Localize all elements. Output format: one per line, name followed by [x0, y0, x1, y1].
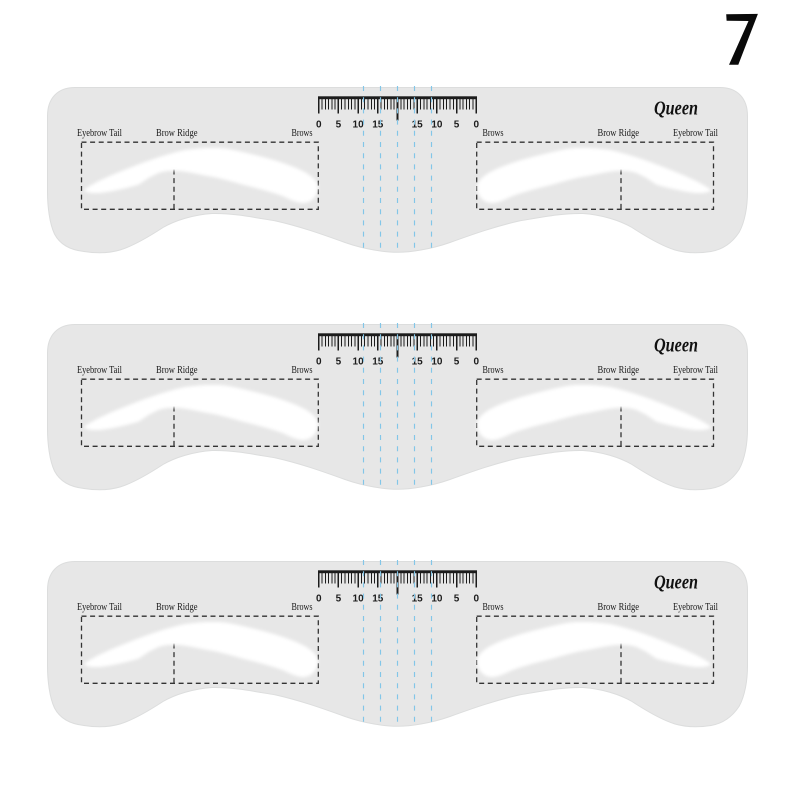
- svg-text:0: 0: [473, 120, 479, 131]
- svg-text:Brow Ridge: Brow Ridge: [156, 602, 198, 613]
- svg-text:Brows: Brows: [483, 365, 504, 376]
- svg-text:15: 15: [412, 357, 424, 368]
- svg-text:Eyebrow Tail: Eyebrow Tail: [77, 602, 122, 613]
- svg-text:10: 10: [431, 120, 443, 131]
- svg-text:15: 15: [372, 357, 384, 368]
- svg-text:Eyebrow Tail: Eyebrow Tail: [673, 365, 718, 376]
- svg-text:10: 10: [353, 357, 365, 368]
- svg-text:Brows: Brows: [483, 602, 504, 613]
- svg-text:0: 0: [316, 357, 322, 368]
- svg-text:Brow Ridge: Brow Ridge: [598, 365, 640, 376]
- svg-text:15: 15: [372, 120, 384, 131]
- svg-text:Eyebrow Tail: Eyebrow Tail: [673, 128, 718, 139]
- svg-text:15: 15: [372, 594, 384, 605]
- svg-text:Brow Ridge: Brow Ridge: [156, 365, 198, 376]
- svg-text:5: 5: [336, 120, 342, 131]
- svg-text:0: 0: [473, 357, 479, 368]
- svg-text:5: 5: [336, 357, 342, 368]
- svg-text:5: 5: [454, 357, 460, 368]
- svg-text:Brow Ridge: Brow Ridge: [598, 602, 640, 613]
- svg-text:15: 15: [412, 594, 424, 605]
- svg-text:Queen: Queen: [654, 572, 698, 594]
- svg-text:Brows: Brows: [292, 365, 313, 376]
- svg-text:10: 10: [431, 594, 443, 605]
- svg-text:10: 10: [353, 120, 365, 131]
- svg-text:5: 5: [454, 120, 460, 131]
- svg-text:0: 0: [473, 594, 479, 605]
- svg-text:Eyebrow Tail: Eyebrow Tail: [673, 602, 718, 613]
- svg-text:5: 5: [336, 594, 342, 605]
- svg-text:10: 10: [431, 357, 443, 368]
- svg-text:Brow Ridge: Brow Ridge: [598, 128, 640, 139]
- svg-text:Brows: Brows: [292, 602, 313, 613]
- svg-text:0: 0: [316, 120, 322, 131]
- svg-text:Brow Ridge: Brow Ridge: [156, 128, 198, 139]
- svg-text:5: 5: [454, 594, 460, 605]
- svg-text:10: 10: [353, 594, 365, 605]
- svg-text:Brows: Brows: [292, 128, 313, 139]
- svg-text:Eyebrow Tail: Eyebrow Tail: [77, 365, 122, 376]
- svg-text:15: 15: [412, 120, 424, 131]
- svg-text:Brows: Brows: [483, 128, 504, 139]
- svg-text:Queen: Queen: [654, 98, 698, 120]
- svg-text:Queen: Queen: [654, 335, 698, 357]
- svg-text:Eyebrow Tail: Eyebrow Tail: [77, 128, 122, 139]
- svg-text:0: 0: [316, 594, 322, 605]
